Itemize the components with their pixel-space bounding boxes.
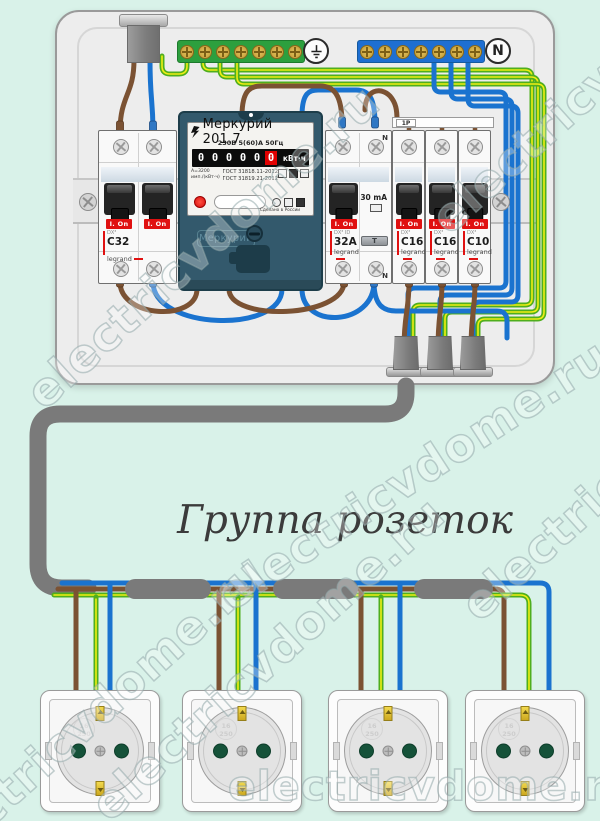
serial-window bbox=[214, 195, 266, 209]
ground-clip bbox=[238, 706, 247, 721]
bus-screw bbox=[450, 45, 464, 59]
ground-clip bbox=[384, 781, 393, 796]
socket-screw bbox=[383, 746, 394, 757]
neutral-symbol: N bbox=[485, 38, 511, 64]
socket-4: 16250 bbox=[465, 690, 585, 812]
socket-hole bbox=[114, 744, 129, 759]
cable-exit-gland bbox=[427, 336, 453, 370]
meter-faceplate: Меркурий 201.7 230В 5(60)А 50Гц 0 0 0 0 … bbox=[187, 122, 314, 216]
pot-icon bbox=[289, 169, 298, 178]
ground-clip bbox=[521, 781, 530, 796]
socket-hole bbox=[213, 744, 228, 759]
switch-on-badge: I. On bbox=[396, 219, 422, 229]
socket-hole bbox=[359, 744, 374, 759]
ground-clip bbox=[384, 706, 393, 721]
terminal-screw bbox=[434, 139, 450, 155]
breaker-label: DX³ C16 legrand bbox=[430, 231, 454, 255]
ground-symbol-icon bbox=[303, 38, 329, 64]
terminal-screw bbox=[434, 261, 450, 277]
socket-screw bbox=[520, 746, 531, 757]
meter-seal bbox=[236, 245, 270, 273]
electricity-meter: Меркурий 201.7 230В 5(60)А 50Гц 0 0 0 0 … bbox=[178, 111, 323, 291]
meter-gost: ГОСТ 31818.11-2012 ГОСТ 31819.21-2012 bbox=[222, 169, 278, 183]
rcd-n-label-bottom: N bbox=[382, 272, 388, 280]
socket-face: 16250 bbox=[198, 707, 286, 795]
bus-screw bbox=[198, 45, 212, 59]
cable-exit-gland bbox=[460, 336, 486, 370]
terminal-screw bbox=[467, 139, 483, 155]
terminal-screw bbox=[368, 139, 384, 155]
bus-screw bbox=[270, 45, 284, 59]
pulse-led bbox=[194, 196, 206, 208]
meter-seal-screw bbox=[246, 225, 263, 242]
bus-screw bbox=[216, 45, 230, 59]
meter-digit: 0 bbox=[209, 151, 221, 165]
rcd-toggle bbox=[329, 183, 358, 215]
wiring-diagram: N I. On I. On DX³ C32 legrand bbox=[0, 0, 600, 821]
meter-display: 0 0 0 0 0 0 кВт·ч bbox=[192, 149, 309, 167]
class-icon bbox=[300, 169, 309, 178]
mercury-logo-icon bbox=[191, 126, 200, 138]
meter-digit: 0 bbox=[195, 151, 207, 165]
switch-on-badge: I. On bbox=[429, 219, 455, 229]
cable-exit-gland bbox=[393, 336, 419, 370]
terminal-screw bbox=[113, 139, 129, 155]
bus-screw bbox=[468, 45, 482, 59]
bus-screw bbox=[414, 45, 428, 59]
meter-digit: 0 bbox=[251, 151, 263, 165]
socket-face: 16250 bbox=[344, 707, 432, 795]
socket-1: 16250 bbox=[40, 690, 160, 812]
rcd-sensitivity: 30 mA bbox=[360, 193, 387, 202]
terminal-screw bbox=[146, 139, 162, 155]
bus-screw bbox=[432, 45, 446, 59]
switch-on-badge: I. On bbox=[144, 219, 170, 229]
breaker-toggle bbox=[429, 183, 455, 215]
rail-screw bbox=[492, 193, 510, 211]
switch-on-badge: I. On bbox=[331, 219, 357, 229]
terminal-screw bbox=[113, 261, 129, 277]
ground-clip bbox=[521, 706, 530, 721]
terminal-screw bbox=[401, 139, 417, 155]
ground-clip bbox=[238, 781, 247, 796]
socket-rating: 16250 bbox=[73, 718, 95, 740]
socket-hole bbox=[402, 744, 417, 759]
terminal-screw bbox=[368, 261, 384, 277]
meter-pulse-constant: А=3200 имп./(кВт·ч) bbox=[191, 169, 221, 183]
comb-busbar: 1P bbox=[392, 117, 494, 128]
cable-entry-gland bbox=[127, 25, 160, 63]
rcd-symbol-icon bbox=[370, 204, 382, 212]
neutral-bus-bar bbox=[357, 40, 485, 63]
made-in-label: Сделано в России bbox=[252, 208, 308, 213]
rail-screw bbox=[79, 193, 97, 211]
bus-screw bbox=[288, 45, 302, 59]
breaker-toggle bbox=[142, 183, 173, 215]
rcd-n-label-top: N bbox=[382, 134, 388, 142]
pe-bus-bar bbox=[177, 40, 305, 63]
socket-face: 16250 bbox=[481, 707, 569, 795]
terminal-screw bbox=[467, 261, 483, 277]
switch-on-badge: I. On bbox=[106, 219, 132, 229]
comb-label: 1P bbox=[396, 119, 416, 127]
socket-3: 16250 bbox=[328, 690, 448, 812]
caption-socket-group: Группа розеток bbox=[160, 498, 530, 543]
socket-hole bbox=[71, 744, 86, 759]
star-icon bbox=[284, 198, 293, 207]
bus-screw bbox=[378, 45, 392, 59]
terminal-screw bbox=[401, 261, 417, 277]
meter-title-row: Меркурий 201.7 bbox=[191, 125, 310, 139]
rcd-label: DX³ ID 32A legrand bbox=[330, 231, 357, 255]
breaker-c10: I. On DX³ C10 legrand bbox=[458, 130, 491, 284]
terminal-screw bbox=[335, 261, 351, 277]
breaker-toggle bbox=[462, 183, 488, 215]
meter-digit: 0 bbox=[237, 151, 249, 165]
socket-screw bbox=[95, 746, 106, 757]
bus-screw bbox=[234, 45, 248, 59]
ground-clip bbox=[96, 706, 105, 721]
ground-clip bbox=[96, 781, 105, 796]
socket-face: 16250 bbox=[56, 707, 144, 795]
meter-digit-decimal: 0 bbox=[265, 151, 277, 165]
breaker-label: DX³ C32 legrand bbox=[103, 231, 173, 255]
bus-screw bbox=[396, 45, 410, 59]
terminal-screw bbox=[335, 139, 351, 155]
rcd-32a: N N 30 mA I. On T DX³ ID 32A legrand bbox=[325, 130, 392, 284]
socket-screw bbox=[237, 746, 248, 757]
eac-icon bbox=[278, 169, 287, 178]
circle-1-icon bbox=[272, 198, 281, 207]
bus-screw bbox=[180, 45, 194, 59]
socket-hole bbox=[539, 744, 554, 759]
bus-screw bbox=[252, 45, 266, 59]
socket-rating: 16250 bbox=[215, 718, 237, 740]
breaker-label: DX³ C16 legrand bbox=[397, 231, 421, 255]
breaker-toggle bbox=[396, 183, 422, 215]
certification-icons bbox=[278, 169, 310, 183]
socket-rating: 16250 bbox=[498, 718, 520, 740]
socket-hole bbox=[256, 744, 271, 759]
certification-icons-2 bbox=[272, 198, 305, 207]
meter-unit: кВт·ч bbox=[283, 154, 306, 163]
breaker-label: DX³ C10 legrand bbox=[463, 231, 487, 255]
main-breaker-c32: I. On I. On DX³ C32 legrand bbox=[98, 130, 177, 284]
terminal-screw bbox=[146, 261, 162, 277]
switch-on-badge: I. On bbox=[462, 219, 488, 229]
rostest-icon bbox=[296, 198, 305, 207]
breaker-toggle bbox=[104, 183, 135, 215]
breaker-c16-2: I. On DX³ C16 legrand bbox=[425, 130, 458, 284]
socket-2: 16250 bbox=[182, 690, 302, 812]
bus-screw bbox=[360, 45, 374, 59]
socket-hole bbox=[496, 744, 511, 759]
socket-rating: 16250 bbox=[361, 718, 383, 740]
breaker-c16-1: I. On DX³ C16 legrand bbox=[392, 130, 425, 284]
rcd-test-button: T bbox=[361, 236, 388, 246]
meter-digit: 0 bbox=[223, 151, 235, 165]
